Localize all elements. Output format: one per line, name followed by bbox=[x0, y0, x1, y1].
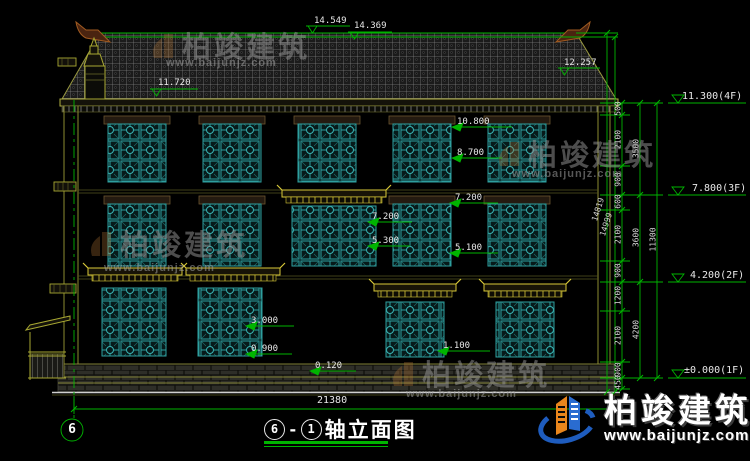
window bbox=[292, 206, 376, 266]
dim-floor-height: 3500 bbox=[632, 134, 641, 164]
floor-elevation-4f: 11.300(4F) bbox=[682, 91, 742, 102]
first-floor-windows bbox=[83, 263, 571, 357]
company-logo-icon bbox=[536, 388, 598, 450]
title-underline-thin bbox=[264, 446, 388, 447]
left-eave-ornament bbox=[76, 22, 110, 42]
company-url: www.baijunjz.com bbox=[604, 428, 750, 444]
plinth-elevation-label: 0.120 bbox=[315, 361, 342, 371]
window bbox=[108, 124, 166, 182]
floor-elevation-3f: 7.800(3F) bbox=[692, 183, 746, 194]
title-axis-end: 1 bbox=[301, 419, 322, 440]
window bbox=[488, 124, 546, 182]
dim-chain-value: 1200 bbox=[614, 281, 623, 311]
right-eave-ornament bbox=[556, 22, 590, 42]
roof-elevation-label: 11.720 bbox=[158, 78, 191, 88]
ridge-elevation-label: 14.549 bbox=[314, 16, 347, 26]
window-elevation-label: 7.200 bbox=[455, 193, 482, 203]
window-elevation-label: 5.300 bbox=[372, 236, 399, 246]
eave-band bbox=[60, 99, 618, 106]
roof bbox=[60, 22, 618, 112]
window-elevation-label: 7.200 bbox=[372, 212, 399, 222]
window bbox=[386, 302, 444, 357]
elevation-triangles bbox=[672, 95, 684, 378]
second-floor-windows bbox=[104, 185, 550, 266]
eave-elevation-label: 12.257 bbox=[564, 58, 597, 68]
dim-floor-height: 4200 bbox=[632, 315, 641, 345]
window bbox=[393, 204, 451, 266]
dim-chain-value: 2100 bbox=[614, 220, 623, 250]
dim-chain-value: 600 bbox=[614, 187, 623, 217]
title-text: 轴立面图 bbox=[325, 414, 417, 444]
eave-dentils bbox=[62, 106, 616, 112]
window bbox=[203, 124, 261, 182]
window-elevation-label: 10.800 bbox=[457, 117, 490, 127]
dim-chain-value: 2100 bbox=[614, 321, 623, 351]
title-dash: - bbox=[288, 420, 298, 439]
dim-overall-height: 11300 bbox=[649, 225, 658, 255]
dim-chain-value: 500 bbox=[614, 94, 623, 124]
dim-floor-height: 3600 bbox=[632, 223, 641, 253]
drawing-title: 6 - 1 轴立面图 bbox=[264, 414, 417, 444]
window bbox=[203, 204, 261, 266]
window bbox=[102, 288, 166, 356]
window bbox=[393, 124, 451, 182]
cad-elevation-canvas: 14.549 14.369 11.720 12.257 11.300(4F) 7… bbox=[0, 0, 750, 461]
center-canopy bbox=[277, 185, 391, 203]
footer-logo: 柏竣建筑 www.baijunjz.com bbox=[536, 388, 750, 450]
window bbox=[496, 302, 554, 357]
window-elevation-label: 5.100 bbox=[455, 243, 482, 253]
window-elevation-label: 3.000 bbox=[251, 316, 278, 326]
title-axis-start: 6 bbox=[264, 419, 285, 440]
axis-bubble-label: 6 bbox=[62, 422, 82, 437]
window-elevation-label: 8.700 bbox=[457, 148, 484, 158]
window bbox=[488, 204, 546, 266]
window-elevation-label: 1.100 bbox=[443, 341, 470, 351]
ridge-elevation-label: 14.369 bbox=[354, 21, 387, 31]
dim-chain-value: 2100 bbox=[614, 125, 623, 155]
company-name: 柏竣建筑 bbox=[604, 394, 750, 429]
floor-elevation-2f: 4.200(2F) bbox=[690, 270, 744, 281]
window bbox=[108, 204, 166, 266]
title-underline bbox=[264, 441, 388, 444]
window bbox=[298, 124, 356, 182]
overall-width-dimension: 21380 bbox=[317, 395, 347, 406]
floor-elevation-1f: ±0.000(1F) bbox=[684, 365, 744, 376]
window-elevation-label: 0.900 bbox=[251, 344, 278, 354]
